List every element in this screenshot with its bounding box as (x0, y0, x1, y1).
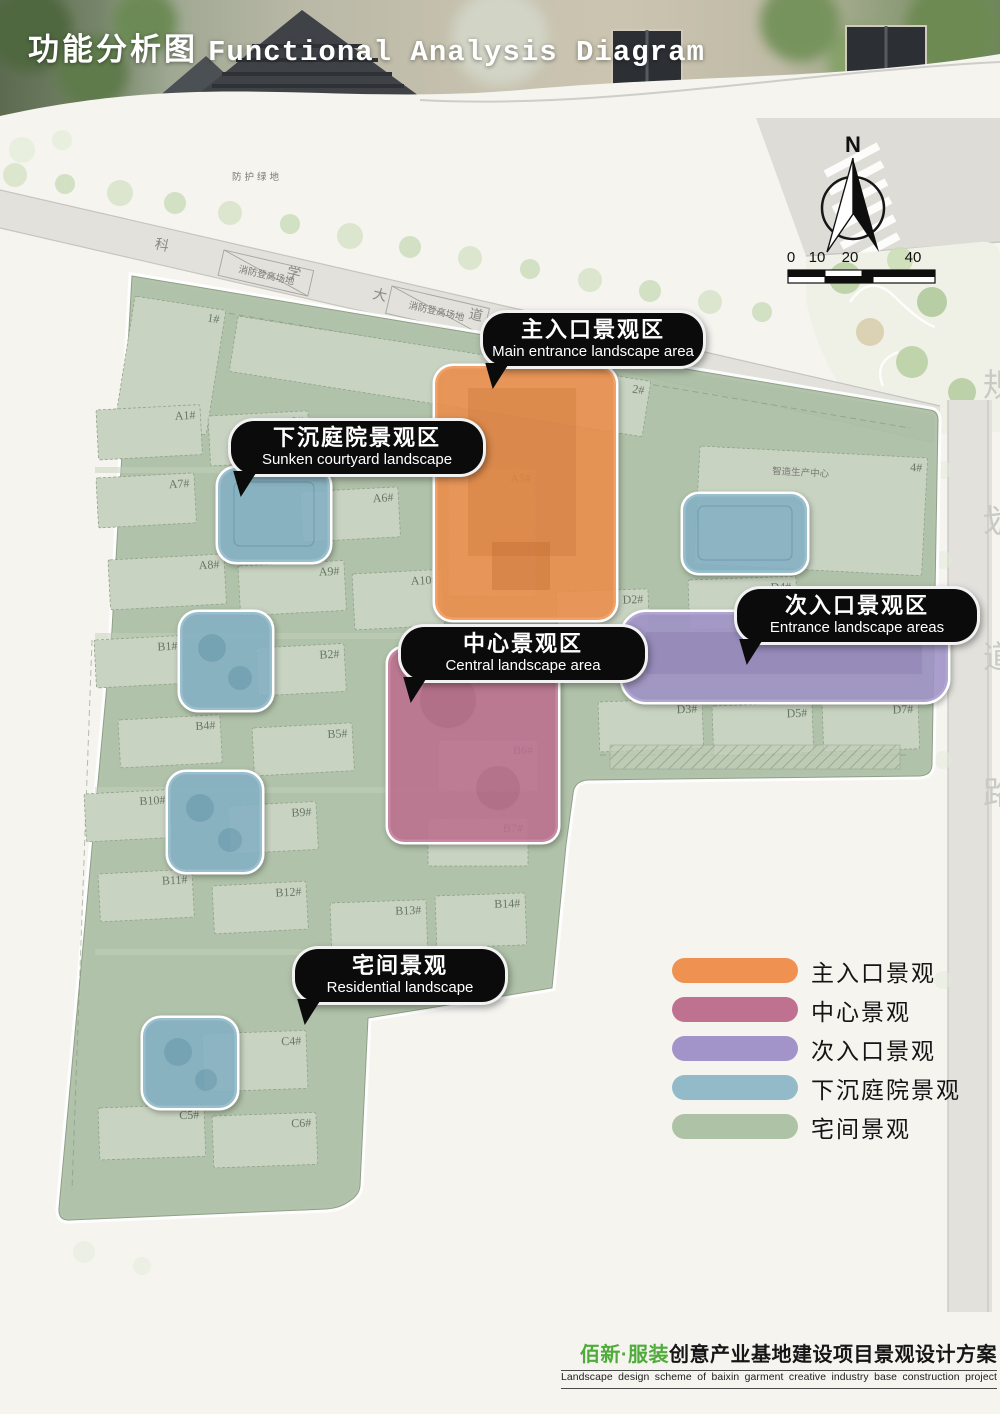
legend-item: 宅间景观 (672, 1114, 961, 1139)
building-label: 4# (910, 460, 923, 475)
legend-swatch (672, 1036, 798, 1061)
legend-swatch (672, 958, 798, 983)
footer-subtitle: Landscape design scheme of baixin garmen… (561, 1371, 997, 1385)
legend-label: 宅间景观 (811, 1110, 911, 1144)
building: C6# (212, 1112, 318, 1168)
building-label: A9# (318, 564, 339, 579)
building-label: A7# (168, 476, 189, 491)
building: B10# (84, 789, 172, 841)
legend-swatch (672, 1114, 798, 1139)
callout-secondary-entrance: 次入口景观区 Entrance landscape areas (734, 586, 980, 645)
planning-road-label: 规划道路 (974, 368, 1000, 912)
footer-title: 佰新·服装创意产业基地建设项目景观设计方案 (561, 1338, 997, 1367)
legend-label: 主入口景观 (811, 954, 936, 988)
callout-zh: 宅间景观 (301, 952, 499, 979)
scale-tick: 0 (787, 249, 795, 266)
footer-rule (561, 1388, 997, 1389)
building-label: A6# (372, 490, 393, 505)
building-label: B2# (319, 647, 340, 662)
page-title-zh: 功能分析图 (28, 32, 198, 67)
building-label: C4# (281, 1034, 301, 1049)
building-label: B1# (157, 639, 178, 654)
north-label: N (845, 132, 861, 157)
hatch-strip (610, 745, 900, 769)
site-plan: 防护绿地 消防登高场地 消防登高场地 科 学 大 道 1#2#4#A1#A2#A… (0, 0, 1000, 1414)
callout-en: Entrance landscape areas (743, 619, 971, 637)
building-label: D5# (786, 706, 807, 721)
building: A7# (96, 473, 196, 528)
page-title: 功能分析图Functional Analysis Diagram (28, 24, 705, 69)
callout-en: Central landscape area (407, 657, 639, 675)
building: A8# (108, 554, 226, 610)
building-label: 1# (206, 311, 220, 327)
building-label: B13# (395, 903, 421, 918)
callout-zh: 主入口景观区 (489, 316, 697, 343)
legend-swatch (672, 1075, 798, 1100)
callout-zh: 次入口景观区 (743, 592, 971, 619)
building: D3# (598, 698, 704, 752)
legend-item: 主入口景观 (672, 958, 961, 983)
building: B13# (330, 900, 428, 951)
page-title-en: Functional Analysis Diagram (208, 36, 705, 69)
callout-central: 中心景观区 Central landscape area (398, 624, 648, 683)
building-label: B10# (139, 793, 166, 808)
building: B14# (435, 893, 527, 948)
building-label: 2# (631, 382, 645, 398)
building: B4# (118, 715, 222, 768)
building: B11# (98, 869, 194, 922)
building-label: A1# (174, 408, 195, 423)
callout-en: Residential landscape (301, 979, 499, 997)
callout-zh: 下沉庭院景观区 (237, 424, 477, 451)
building: B12# (212, 881, 308, 934)
callout-sunken-courtyard: 下沉庭院景观区 Sunken courtyard landscape (228, 418, 486, 477)
building-label: B12# (275, 884, 302, 899)
footer-project-title: 创意产业基地建设项目景观设计方案 (669, 1344, 997, 1366)
design-board: 功能分析图Functional Analysis Diagram (0, 0, 1000, 1414)
building: C5# (98, 1104, 206, 1160)
legend: 主入口景观中心景观次入口景观下沉庭院景观宅间景观 (672, 958, 961, 1153)
building: B1# (94, 635, 184, 688)
callout-residential: 宅间景观 Residential landscape (292, 946, 508, 1005)
legend-item: 下沉庭院景观 (672, 1075, 961, 1100)
building-label: B11# (162, 872, 188, 887)
legend-label: 次入口景观 (811, 1032, 936, 1066)
building-label: B14# (494, 896, 520, 911)
scale-tick: 20 (842, 249, 859, 266)
legend-label: 下沉庭院景观 (811, 1071, 961, 1105)
callout-en: Sunken courtyard landscape (237, 451, 477, 469)
building: A1# (96, 405, 202, 460)
building: B5# (252, 723, 354, 776)
legend-item: 中心景观 (672, 997, 961, 1022)
footer: 佰新·服装创意产业基地建设项目景观设计方案 Landscape design s… (561, 1338, 997, 1389)
building: D7# (822, 699, 920, 752)
building-label: A8# (198, 557, 219, 572)
callout-main-entrance: 主入口景观区 Main entrance landscape area (480, 310, 706, 369)
zone-main-entrance (435, 366, 616, 620)
scale-tick: 40 (905, 249, 922, 266)
protective-green-label: 防护绿地 (232, 171, 282, 183)
building-label: D2# (622, 592, 643, 607)
building-label: B4# (195, 718, 216, 733)
legend-item: 次入口景观 (672, 1036, 961, 1061)
building-label: C6# (291, 1116, 311, 1131)
footer-brand: 佰新·服装 (580, 1344, 669, 1366)
legend-label: 中心景观 (811, 993, 911, 1027)
callout-zh: 中心景观区 (407, 630, 639, 657)
building: A9# (238, 560, 346, 615)
building: A10# (352, 569, 445, 630)
building-label: B5# (327, 726, 348, 741)
scale-tick: 10 (809, 249, 826, 266)
callout-en: Main entrance landscape area (489, 343, 697, 361)
legend-swatch (672, 997, 798, 1022)
building-label: B9# (291, 805, 312, 820)
